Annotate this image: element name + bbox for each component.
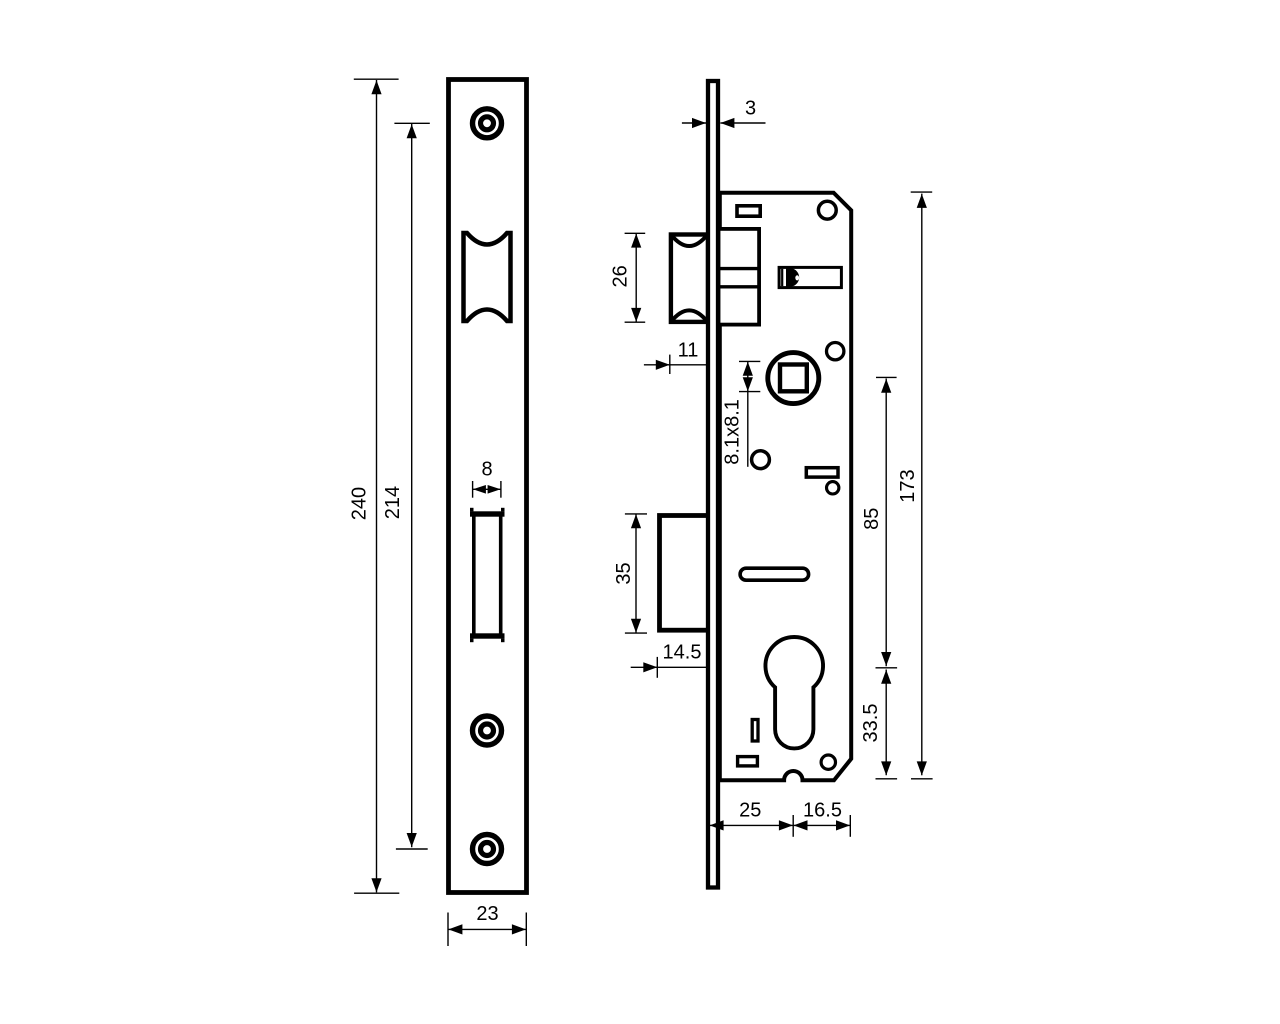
svg-text:240: 240 (349, 487, 371, 520)
svg-text:25: 25 (739, 800, 761, 822)
svg-text:173: 173 (897, 469, 919, 502)
svg-text:26: 26 (610, 265, 632, 287)
svg-text:8.1x8.1: 8.1x8.1 (722, 399, 744, 465)
svg-text:14.5: 14.5 (663, 641, 702, 663)
svg-text:11: 11 (678, 340, 699, 362)
svg-text:85: 85 (861, 508, 883, 530)
svg-text:214: 214 (382, 486, 404, 519)
svg-text:8: 8 (481, 459, 492, 481)
svg-text:33.5: 33.5 (860, 704, 882, 743)
svg-text:35: 35 (613, 562, 635, 584)
svg-text:23: 23 (476, 903, 498, 925)
svg-text:16.5: 16.5 (803, 800, 842, 822)
svg-text:3: 3 (745, 98, 756, 120)
